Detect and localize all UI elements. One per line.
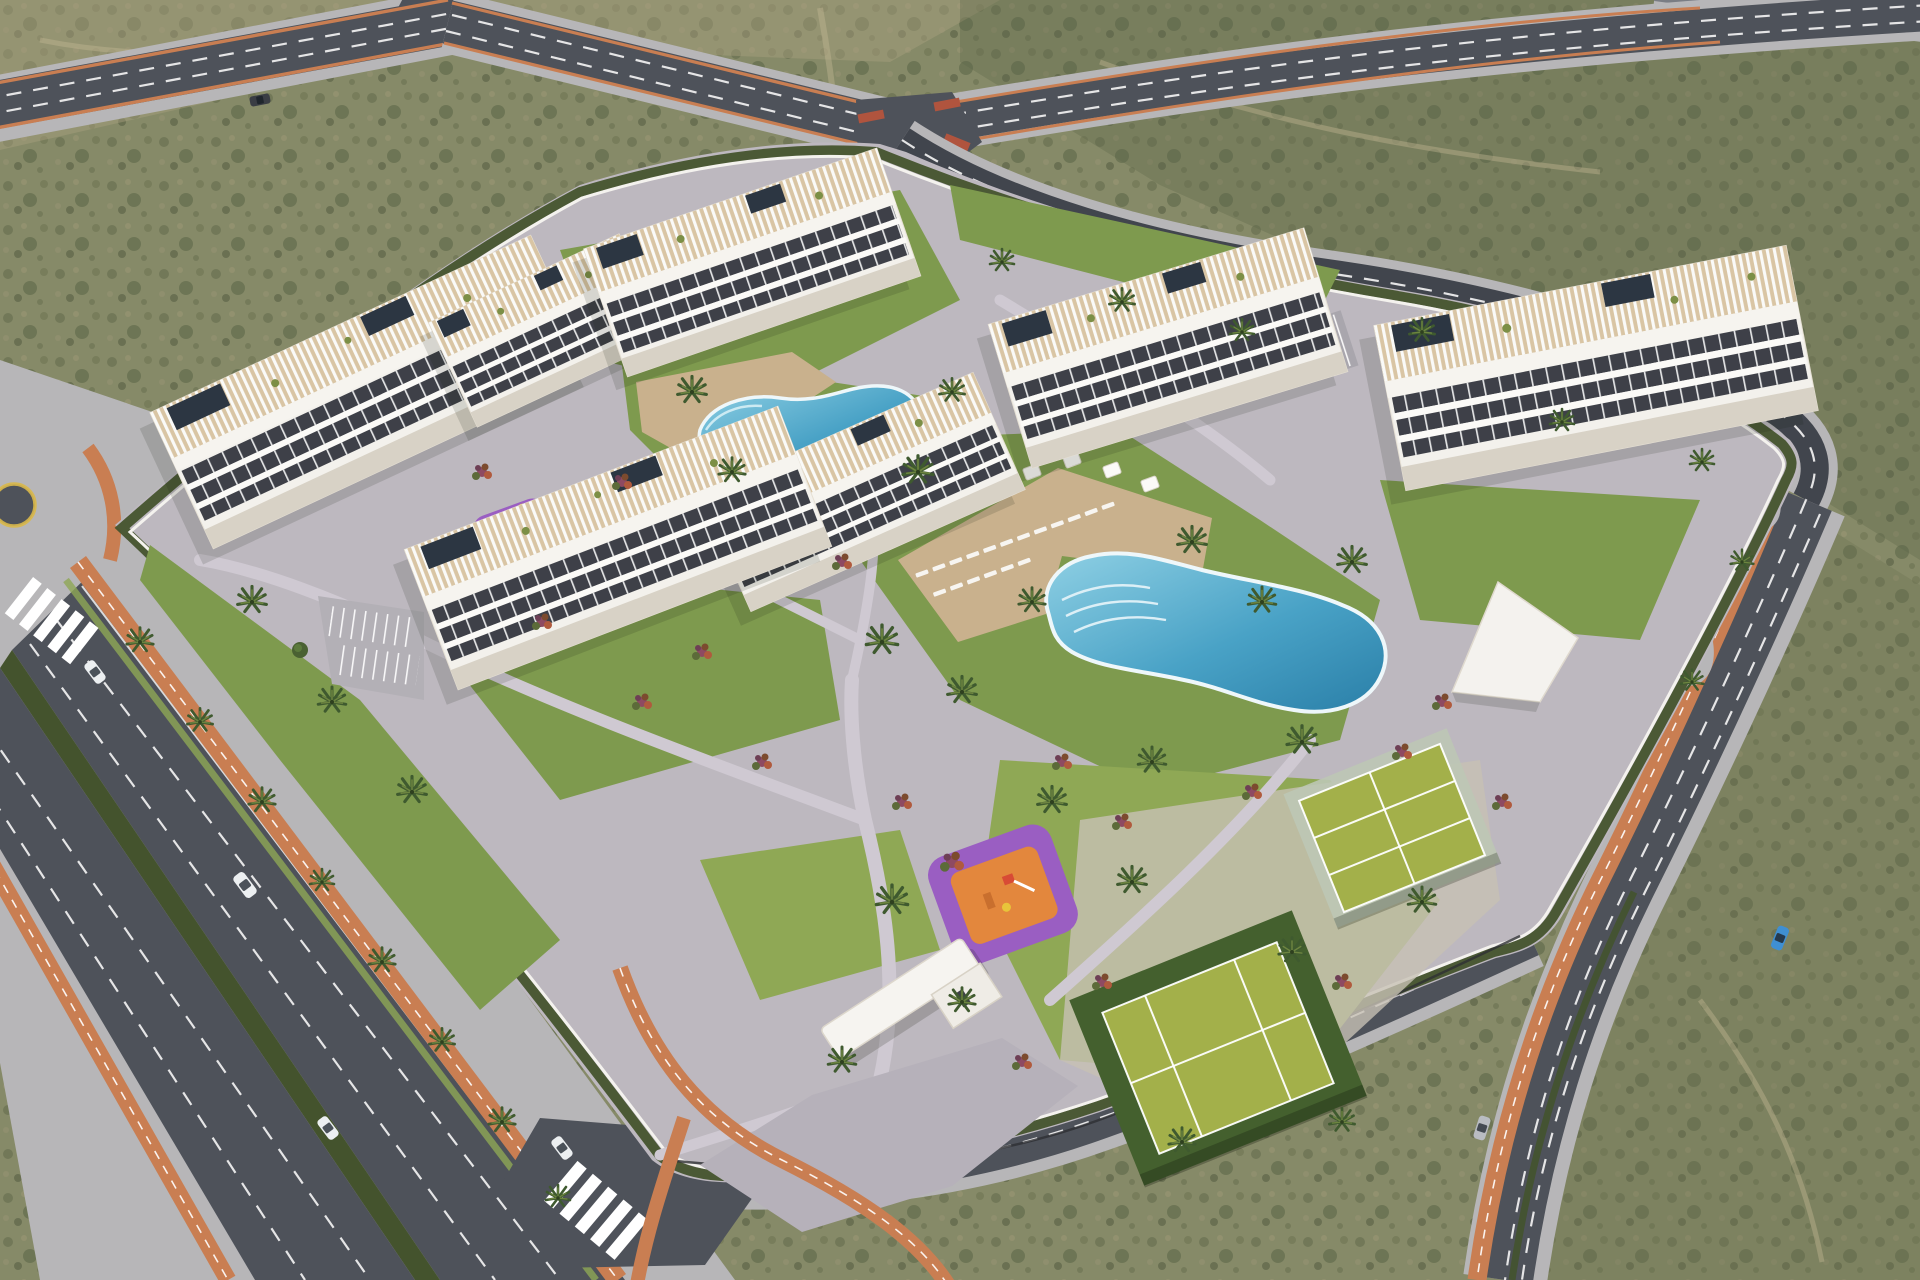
- aerial-render: [0, 0, 1920, 1280]
- render-canvas: [0, 0, 1920, 1280]
